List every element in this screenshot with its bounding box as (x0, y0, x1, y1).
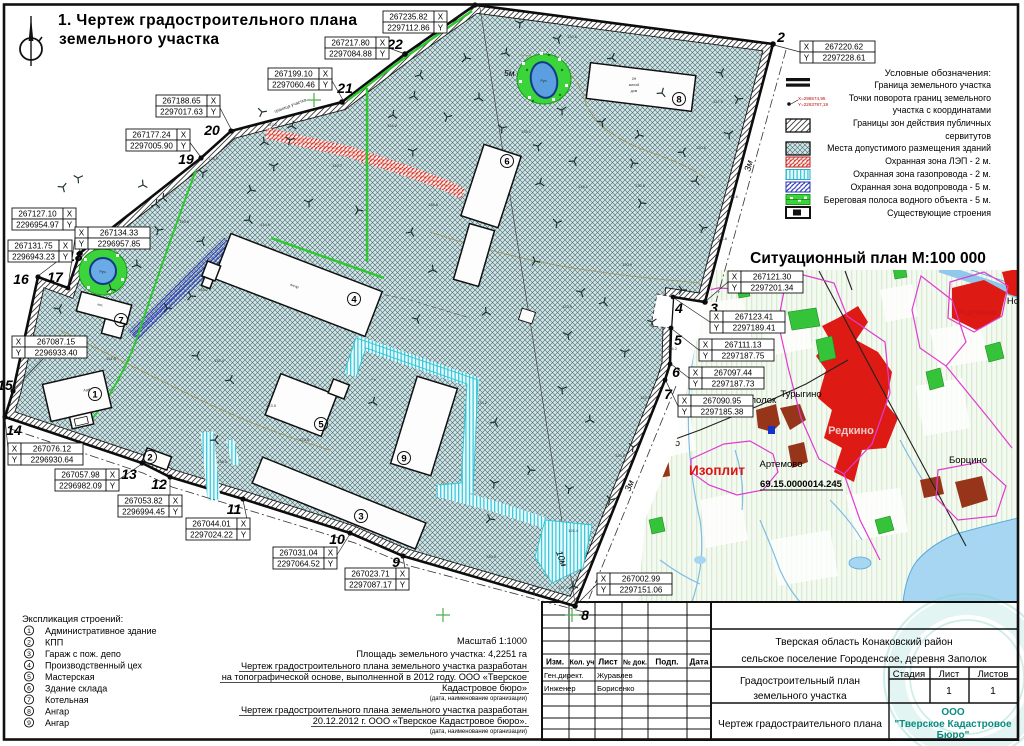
svg-text:X=296574,95: X=296574,95 (798, 96, 826, 101)
svg-text:267090.95: 267090.95 (703, 396, 742, 405)
svg-text:Ген.директ.: Ген.директ. (544, 671, 583, 680)
svg-text:Кол. уч: Кол. уч (570, 660, 595, 667)
svg-text:122.9: 122.9 (208, 156, 219, 161)
svg-text:X: X (400, 569, 406, 578)
svg-text:11: 11 (227, 501, 242, 517)
svg-text:1: 1 (946, 686, 952, 697)
svg-text:Y: Y (438, 23, 444, 32)
svg-text:20.12.2012 г. ООО «Тверское Ка: 20.12.2012 г. ООО «Тверское Кадастровое … (313, 716, 527, 726)
svg-text:Ангар: Ангар (45, 718, 69, 728)
svg-text:14: 14 (6, 422, 22, 438)
svg-text:267123.41: 267123.41 (735, 312, 774, 321)
svg-text:дом: дом (631, 89, 638, 93)
svg-text:267217.80: 267217.80 (331, 38, 370, 47)
svg-text:Y: Y (703, 351, 709, 360)
svg-text:Y: Y (380, 49, 386, 58)
svg-text:X: X (328, 548, 334, 557)
svg-text:Ангар: Ангар (45, 707, 69, 717)
svg-text:123.5: 123.5 (266, 403, 277, 408)
svg-text:2296957.85: 2296957.85 (98, 239, 141, 248)
svg-text:138.2: 138.2 (198, 287, 209, 292)
svg-text:Дата: Дата (690, 658, 709, 667)
svg-text:Границы зон действия публичных: Границы зон действия публичных (853, 118, 992, 128)
svg-text:Лист: Лист (939, 669, 960, 680)
svg-text:2296930.64: 2296930.64 (31, 455, 74, 464)
svg-text:Y: Y (328, 559, 334, 568)
svg-text:X: X (804, 42, 810, 51)
svg-text:267097.44: 267097.44 (714, 368, 753, 377)
svg-text:ООО: ООО (941, 707, 965, 718)
svg-text:Тверская область Конаковский р: Тверская область Конаковский район (775, 636, 952, 648)
svg-text:Y: Y (79, 239, 85, 248)
svg-text:127.5: 127.5 (713, 99, 724, 104)
svg-text:1: 1 (27, 628, 31, 635)
svg-text:2: 2 (776, 29, 785, 45)
svg-text:X: X (241, 519, 247, 528)
svg-text:2: 2 (27, 640, 31, 647)
svg-text:2297112.86: 2297112.86 (387, 23, 430, 32)
svg-text:Охранная зона ЛЭП - 2 м.: Охранная зона ЛЭП - 2 м. (885, 156, 991, 166)
svg-text:2297151.06: 2297151.06 (620, 585, 663, 594)
svg-text:69.15.0000014.245: 69.15.0000014.245 (760, 479, 843, 490)
svg-text:Артемово: Артемово (760, 459, 803, 470)
svg-text:(дата, наименование организаци: (дата, наименование организации) (430, 729, 527, 735)
svg-text:2297185.38: 2297185.38 (701, 407, 744, 416)
svg-text:КПП: КПП (45, 638, 63, 648)
svg-text:Борцино: Борцино (949, 455, 987, 466)
svg-text:Y: Y (16, 348, 22, 357)
svg-text:Экспликация строений:: Экспликация строений: (22, 614, 123, 624)
svg-text:2297084.88: 2297084.88 (329, 49, 372, 58)
svg-text:2297064.52: 2297064.52 (277, 559, 320, 568)
svg-text:жилой: жилой (629, 83, 640, 87)
svg-text:267002.99: 267002.99 (622, 574, 661, 583)
svg-text:Условные обозначения:: Условные обозначения: (885, 68, 991, 79)
svg-text:267235.82: 267235.82 (389, 12, 428, 21)
svg-text:9: 9 (401, 454, 406, 465)
svg-text:Подп.: Подп. (655, 658, 678, 667)
svg-text:2296943.23: 2296943.23 (12, 252, 55, 261)
svg-text:5: 5 (318, 420, 324, 431)
svg-text:122.3: 122.3 (640, 395, 651, 400)
svg-text:X: X (380, 38, 386, 47)
svg-text:"Тверское Кадастровое: "Тверское Кадастровое (894, 719, 1012, 730)
svg-text:Чертеж градостраительного пл: Чертеж градостраительного плана (718, 719, 882, 730)
svg-text:5: 5 (674, 332, 682, 348)
svg-text:120.6: 120.6 (696, 145, 707, 150)
svg-text:Y: Y (693, 379, 699, 388)
svg-text:3: 3 (358, 512, 363, 523)
svg-text:Охранная зона водопровода - 5: Охранная зона водопровода - 5 м. (850, 182, 991, 192)
svg-text:земельного участка: земельного участка (753, 691, 847, 702)
svg-text:4: 4 (351, 295, 357, 306)
svg-text:267199.10: 267199.10 (274, 69, 313, 78)
svg-text:267134.33: 267134.33 (100, 228, 139, 237)
svg-text:Турыгино: Турыгино (780, 389, 821, 400)
svg-text:10: 10 (329, 531, 345, 547)
svg-text:Чертеж градостроительного план: Чертеж градостроительного плана земельно… (241, 661, 527, 671)
svg-text:3: 3 (27, 651, 31, 658)
svg-text:267127.10: 267127.10 (18, 209, 57, 218)
svg-text:134.9: 134.9 (260, 222, 271, 227)
svg-text:Граница земельного участка: Граница земельного участка (874, 80, 991, 90)
svg-text:134.2: 134.2 (477, 400, 488, 405)
svg-text:Y: Y (400, 580, 406, 589)
svg-text:Y=2263787,19: Y=2263787,19 (798, 102, 828, 107)
svg-text:4: 4 (674, 300, 683, 316)
svg-text:2296933.40: 2296933.40 (35, 348, 78, 357)
svg-text:20: 20 (203, 122, 220, 138)
svg-text:№ док.: № док. (623, 659, 647, 667)
svg-text:Охранная зона газопровода - 2: Охранная зона газопровода - 2 м. (853, 169, 991, 179)
svg-text:Радченко: Радченко (957, 307, 997, 317)
svg-text:Y: Y (804, 53, 810, 62)
svg-text:Y: Y (67, 220, 73, 229)
svg-text:Y: Y (12, 455, 18, 464)
svg-text:X: X (181, 130, 187, 139)
svg-text:Журавлев: Журавлев (597, 671, 633, 680)
svg-text:2: 2 (147, 453, 152, 464)
svg-text:2296994.45: 2296994.45 (122, 507, 165, 516)
svg-text:21: 21 (336, 80, 353, 96)
svg-text:2297187.73: 2297187.73 (712, 379, 755, 388)
svg-text:(дата, наименование организаци: (дата, наименование организации) (430, 696, 527, 702)
svg-text:X: X (79, 228, 85, 237)
svg-text:Кадастровое бюро»: Кадастровое бюро» (442, 683, 527, 693)
svg-text:Y: Y (714, 323, 720, 332)
svg-text:124.2: 124.2 (387, 123, 398, 128)
svg-text:Гараж с пож. депо: Гараж с пож. депо (45, 649, 121, 659)
svg-text:Листов: Листов (978, 669, 1009, 680)
svg-text:123.9: 123.9 (562, 304, 573, 309)
svg-text:19: 19 (178, 151, 194, 167)
svg-text:2297060.46: 2297060.46 (272, 80, 315, 89)
svg-text:на топографической основе, вып: на топографической основе, выполненной в… (222, 672, 527, 682)
svg-text:Борисенко: Борисенко (597, 684, 635, 693)
svg-text:135.6: 135.6 (728, 194, 739, 199)
svg-text:2297228.61: 2297228.61 (823, 53, 866, 62)
svg-text:Y: Y (323, 80, 329, 89)
svg-text:2296982.09: 2296982.09 (59, 481, 102, 490)
svg-text:120.9: 120.9 (622, 262, 633, 267)
svg-text:Здание склада: Здание склада (45, 684, 107, 694)
svg-text:Y: Y (241, 530, 247, 539)
svg-text:6: 6 (27, 686, 31, 693)
svg-text:135.1: 135.1 (521, 129, 532, 134)
svg-text:6: 6 (504, 157, 509, 168)
svg-text:2Н: 2Н (632, 77, 637, 81)
svg-text:Изм.: Изм. (546, 658, 564, 667)
svg-text:2297201.34: 2297201.34 (751, 283, 794, 292)
svg-text:Y: Y (601, 585, 607, 594)
svg-text:2297024.22: 2297024.22 (190, 530, 233, 539)
svg-text:267220.62: 267220.62 (825, 42, 864, 51)
svg-text:X: X (601, 574, 607, 583)
svg-text:Масштаб 1:1000: Масштаб 1:1000 (457, 636, 527, 646)
svg-text:267111.13: 267111.13 (724, 340, 762, 349)
svg-text:267131.75: 267131.75 (14, 241, 53, 250)
svg-text:267188.65: 267188.65 (162, 96, 201, 105)
svg-text:131.8: 131.8 (106, 356, 117, 361)
svg-text:8: 8 (676, 95, 681, 106)
svg-text:267121.30: 267121.30 (753, 272, 792, 281)
svg-text:13: 13 (121, 466, 137, 482)
svg-text:Точки поворота границ земельно: Точки поворота границ земельного (849, 93, 991, 103)
svg-text:15: 15 (0, 377, 13, 393)
svg-text:X: X (12, 444, 18, 453)
svg-text:Y: Y (732, 283, 738, 292)
svg-text:Y: Y (110, 481, 116, 490)
svg-text:124.8: 124.8 (717, 236, 728, 241)
svg-text:2296954.97: 2296954.97 (16, 220, 59, 229)
svg-text:120.8: 120.8 (615, 453, 626, 458)
svg-text:1. Чертеж градостроительного п: 1. Чертеж градостроительного плана (58, 12, 357, 29)
svg-text:Редкино: Редкино (828, 425, 874, 437)
svg-text:Изоплит: Изоплит (689, 463, 745, 478)
svg-text:7: 7 (27, 697, 31, 704)
svg-text:120.5: 120.5 (486, 554, 497, 559)
svg-text:Y: Y (181, 141, 187, 150)
svg-text:Производственный цех: Производственный цех (45, 661, 142, 671)
svg-text:Административное здание: Административное здание (45, 626, 157, 636)
svg-text:участка с координатами: участка с координатами (893, 105, 991, 115)
svg-text:X: X (732, 272, 738, 281)
svg-text:Y: Y (173, 507, 179, 516)
svg-text:Руч.: Руч. (541, 79, 548, 83)
svg-text:2297087.17: 2297087.17 (349, 580, 392, 589)
svg-text:Y: Y (211, 107, 217, 116)
svg-text:7: 7 (118, 316, 123, 327)
svg-text:4: 4 (27, 663, 31, 670)
svg-text:X: X (714, 312, 720, 321)
svg-text:сельское поселение Городенское: сельское поселение Городенское, деревня … (741, 654, 987, 665)
svg-text:Градостроительный план: Градостроительный план (740, 676, 860, 687)
svg-text:123.8: 123.8 (299, 437, 310, 442)
svg-text:Ситуационный план М:100 000: Ситуационный план М:100 000 (750, 250, 986, 267)
svg-text:137.7: 137.7 (558, 585, 569, 590)
svg-text:Места допустимого размещения з: Места допустимого размещения зданий (827, 143, 991, 153)
svg-text:Руч.: Руч. (100, 270, 107, 274)
svg-text:6: 6 (672, 364, 680, 380)
svg-text:Мастерская: Мастерская (45, 672, 95, 682)
svg-text:8: 8 (581, 607, 589, 623)
svg-text:земельного участка: земельного участка (59, 31, 219, 48)
svg-text:132.4: 132.4 (214, 358, 225, 363)
svg-text:X: X (693, 368, 699, 377)
svg-text:135.6: 135.6 (179, 219, 190, 224)
svg-text:X: X (323, 69, 329, 78)
svg-text:267057.98: 267057.98 (61, 470, 100, 479)
svg-text:X: X (173, 496, 179, 505)
svg-text:138.0: 138.0 (217, 459, 228, 464)
svg-text:126.4: 126.4 (568, 528, 579, 533)
svg-text:138.1: 138.1 (578, 184, 589, 189)
svg-text:132.6: 132.6 (567, 34, 578, 39)
svg-text:Чертеж градостроительного план: Чертеж градостроительного плана земельно… (241, 705, 527, 715)
svg-text:X: X (682, 396, 688, 405)
svg-text:X: X (438, 12, 444, 21)
svg-text:Инженер: Инженер (544, 684, 576, 693)
svg-text:Площадь земельного участка: 4,: Площадь земельного участка: 4,2251 га (356, 649, 528, 659)
svg-text:8: 8 (27, 709, 31, 716)
svg-text:Береговая полоса водного объек: Береговая полоса водного объекта - 5 м. (824, 195, 991, 205)
svg-text:X: X (16, 337, 22, 346)
svg-text:Стадия: Стадия (893, 669, 925, 680)
svg-text:2297189.41: 2297189.41 (733, 323, 776, 332)
svg-text:138.6: 138.6 (428, 202, 439, 207)
svg-text:X: X (110, 470, 116, 479)
svg-text:X: X (67, 209, 73, 218)
svg-text:267023.71: 267023.71 (351, 569, 390, 578)
svg-text:Котельная: Котельная (45, 695, 89, 705)
svg-text:Y: Y (682, 407, 688, 416)
svg-text:1: 1 (92, 390, 98, 401)
svg-text:X: X (63, 241, 69, 250)
svg-text:2297187.75: 2297187.75 (722, 351, 765, 360)
svg-text:17: 17 (47, 269, 64, 285)
svg-text:Y: Y (63, 252, 69, 261)
svg-text:2297005.90: 2297005.90 (130, 141, 173, 150)
svg-text:267031.04: 267031.04 (279, 548, 318, 557)
svg-text:267087.15: 267087.15 (37, 337, 76, 346)
svg-text:сервитутов: сервитутов (945, 131, 991, 141)
svg-text:12: 12 (151, 476, 167, 492)
svg-text:Лист: Лист (598, 658, 617, 667)
svg-text:1: 1 (990, 686, 996, 697)
svg-text:267177.24: 267177.24 (132, 130, 171, 139)
svg-text:267053.82: 267053.82 (124, 496, 163, 505)
svg-text:137.8: 137.8 (267, 122, 278, 127)
svg-text:2297017.63: 2297017.63 (160, 107, 203, 116)
svg-text:5: 5 (27, 674, 31, 681)
svg-text:130.8: 130.8 (635, 183, 646, 188)
svg-text:9: 9 (27, 720, 31, 727)
svg-text:267076.12: 267076.12 (33, 444, 72, 453)
svg-text:Существующие строения: Существующие строения (887, 208, 991, 218)
svg-text:5м: 5м (504, 68, 515, 78)
svg-text:16: 16 (13, 271, 29, 287)
svg-text:X: X (211, 96, 217, 105)
svg-text:7: 7 (664, 386, 673, 402)
svg-text:267044.01: 267044.01 (192, 519, 231, 528)
svg-text:132.7: 132.7 (332, 163, 343, 168)
svg-text:X: X (703, 340, 709, 349)
